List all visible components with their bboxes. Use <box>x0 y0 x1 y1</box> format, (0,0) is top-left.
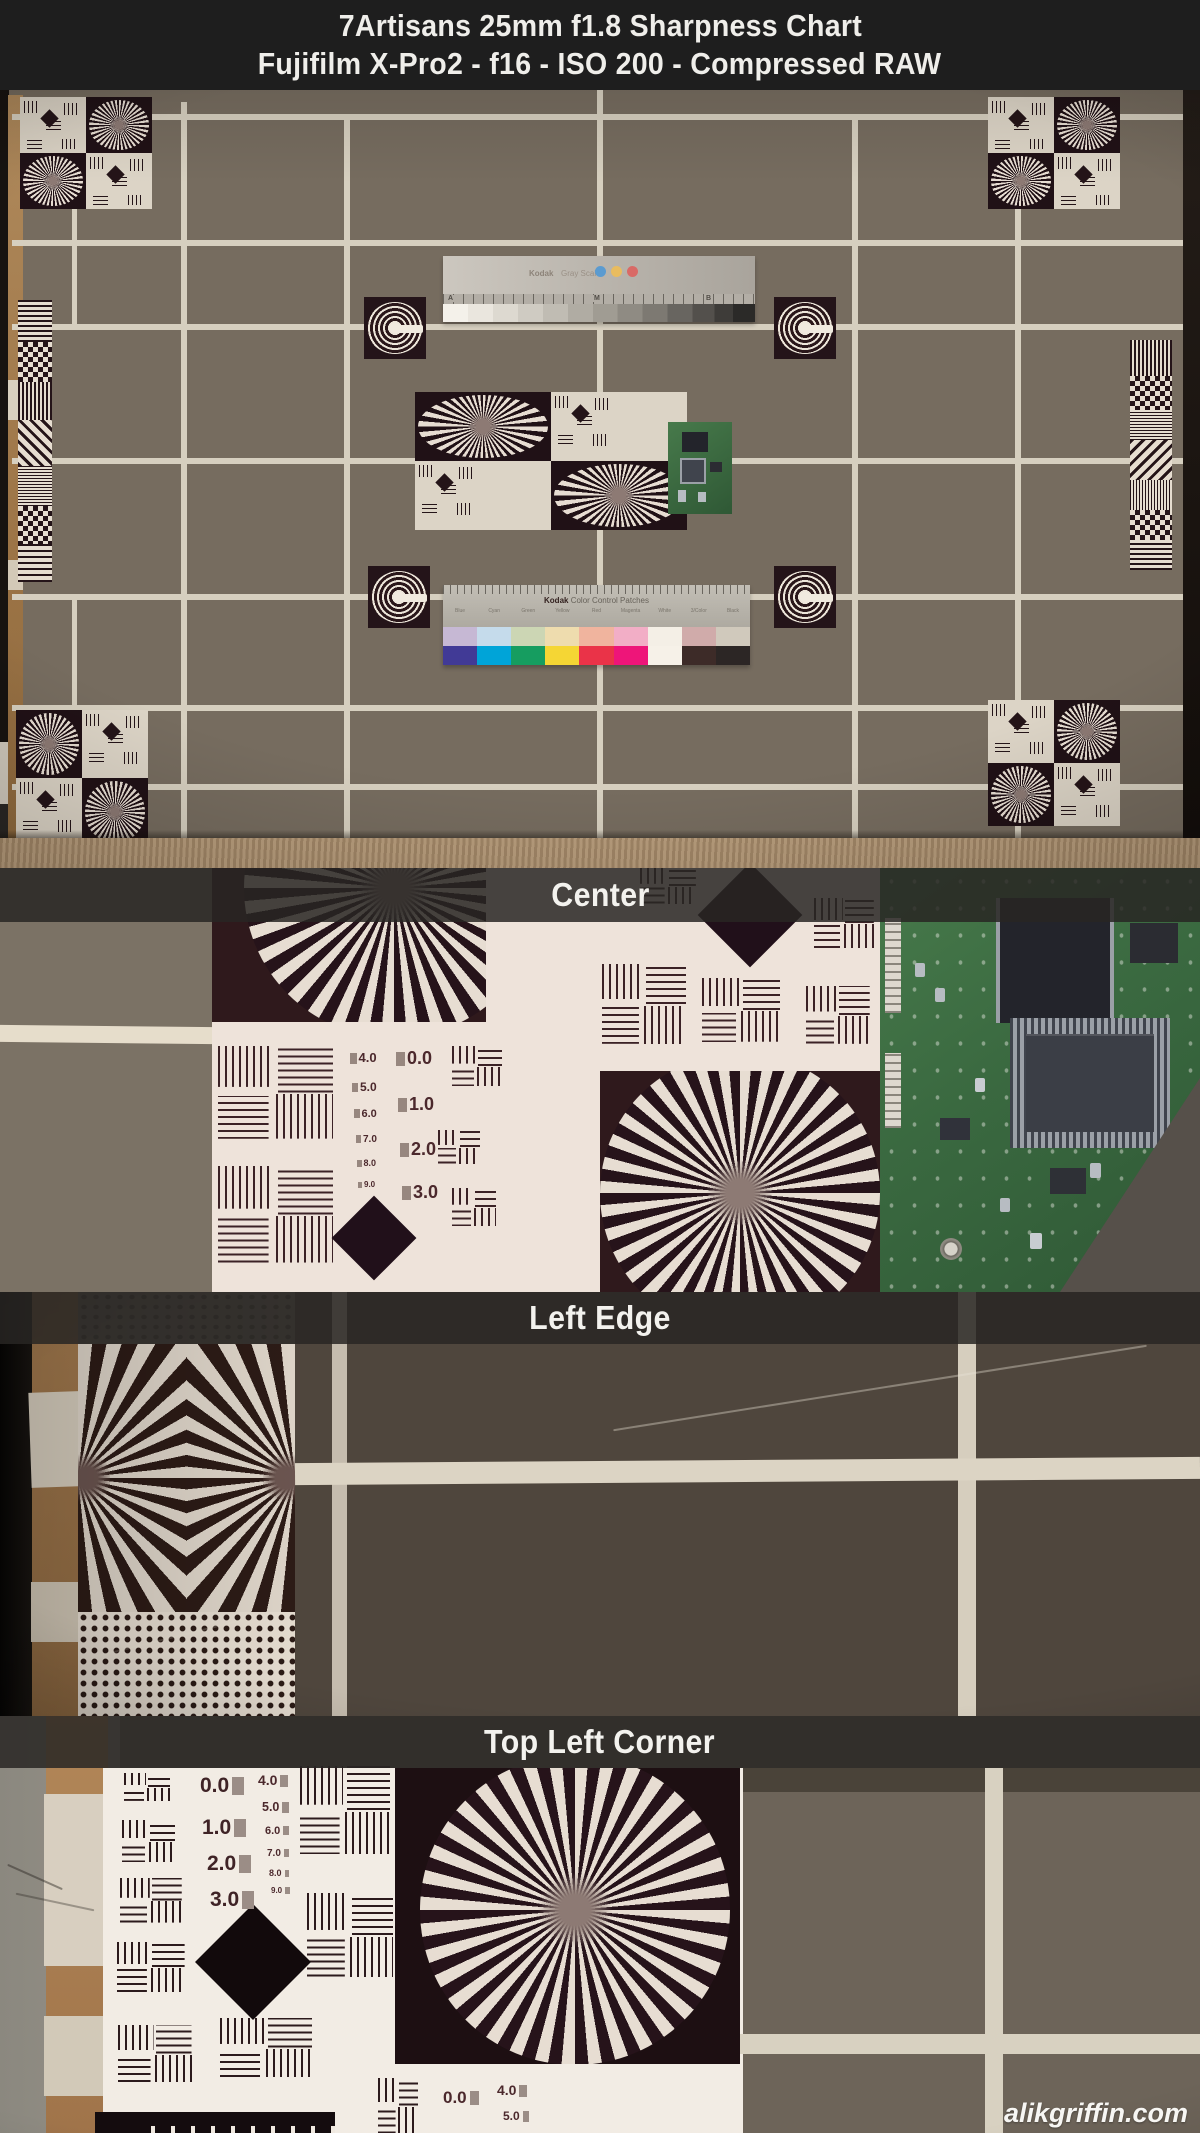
resolution-number: 2.0 <box>400 1139 436 1160</box>
starburst-icon <box>420 1768 730 2064</box>
pcb-connector <box>885 918 901 1013</box>
stripe-pattern <box>18 300 52 342</box>
section-label-band: Left Edge <box>0 1292 1200 1344</box>
stripe-pattern <box>1130 540 1172 570</box>
chip <box>710 462 722 472</box>
chip <box>680 458 706 484</box>
checker-pattern <box>1130 376 1172 410</box>
resolution-number: 1.0 <box>398 1094 434 1115</box>
corner-target-cluster-bottom-left <box>16 710 148 846</box>
patch-column-label: Magenta <box>614 608 648 614</box>
grid-line-vertical <box>181 102 187 842</box>
ruler-brand-label: Kodak <box>529 269 553 278</box>
grid-pattern <box>1130 410 1172 440</box>
grid-pattern <box>18 466 52 506</box>
patch-swatch <box>716 627 750 646</box>
patch-column-label: Black <box>716 608 750 614</box>
dark-foreground <box>0 1292 34 1716</box>
patch-swatch <box>511 646 545 665</box>
screenshot-canvas: 7Artisans 25mm f1.8 Sharpness Chart Fuji… <box>0 0 1200 2133</box>
capacitor <box>935 988 945 1002</box>
starburst-tile <box>551 461 687 530</box>
patch-column-label: Yellow <box>545 608 579 614</box>
chip <box>940 1118 970 1140</box>
zone-plate-target <box>364 297 426 359</box>
bar-target <box>307 1893 393 1977</box>
wall-scratch <box>613 1345 1147 1431</box>
patch-swatch <box>648 627 682 646</box>
wall-left <box>0 868 212 1292</box>
grid-line-vertical <box>958 1292 976 1716</box>
bar-target-tile <box>1054 763 1120 826</box>
bar-target <box>218 1166 333 1263</box>
center-crop-photo: 0.0 1.0 2.0 3.0 4.0 5.0 6.0 7.0 8.0 9.0 <box>0 868 1200 1292</box>
title-line-2: Fujifilm X-Pro2 - f16 - ISO 200 - Compre… <box>258 45 942 83</box>
patches-title: Kodak Color Control Patches <box>443 596 750 605</box>
patches-column-labels: Blue Cyan Green Yellow Red Magenta White… <box>443 608 750 614</box>
patch-swatch <box>579 627 613 646</box>
patches-ruler-ticks <box>443 585 750 594</box>
resolution-number: 6.0 <box>265 1825 289 1837</box>
title-bar: 7Artisans 25mm f1.8 Sharpness Chart Fuji… <box>0 0 1200 90</box>
bar-target-tile <box>1054 153 1120 209</box>
patch-swatch <box>545 627 579 646</box>
title-line-1: 7Artisans 25mm f1.8 Sharpness Chart <box>338 7 861 45</box>
starburst-square <box>600 1071 880 1292</box>
stripe-pattern <box>18 382 52 420</box>
patch-row-pastel <box>443 627 750 646</box>
resolution-number: 8.0 <box>357 1158 376 1168</box>
ruler-letter: M <box>593 295 601 302</box>
patch-swatch <box>477 646 511 665</box>
resolution-number: 9.0 <box>271 1886 290 1895</box>
resolution-number: 6.0 <box>354 1108 377 1120</box>
screw-pad <box>940 1238 962 1260</box>
ruler-body: Kodak Gray Scale <box>443 256 755 294</box>
patch-column-label: Red <box>579 608 613 614</box>
patch-swatch <box>716 646 750 665</box>
starburst-tile <box>20 153 86 209</box>
bar-target <box>378 2078 418 2133</box>
grid-line-horizontal <box>12 324 1188 330</box>
grid-line-vertical <box>985 1768 1003 2133</box>
grid-line-horizontal <box>0 1025 214 1044</box>
chip <box>682 432 708 452</box>
resolution-number: 3.0 <box>210 1888 254 1912</box>
resolution-number: 7.0 <box>267 1848 289 1859</box>
patch-swatch <box>579 646 613 665</box>
bar-target <box>452 1046 502 1086</box>
pcb-connector <box>885 1053 901 1128</box>
bar-target-tile <box>415 461 551 530</box>
wedge-fan-target <box>78 1344 295 1612</box>
pcb-board-small <box>668 422 732 514</box>
patch-column-label: 3/Color <box>682 608 716 614</box>
section-label: Top Left Corner <box>485 1723 716 1761</box>
capacitor <box>1000 1198 1010 1212</box>
section-label-band: Top Left Corner <box>0 1716 1200 1768</box>
fan-center-blur <box>78 1450 110 1506</box>
checker-pattern <box>18 506 52 544</box>
bar-target <box>124 1773 170 1801</box>
capacitor <box>678 490 686 502</box>
capacitor <box>698 492 706 502</box>
wedge-pattern <box>1130 440 1172 480</box>
carpet <box>0 838 1200 868</box>
wedge-pattern <box>18 420 52 466</box>
grid-line-horizontal <box>740 2034 1200 2054</box>
patch-swatch <box>614 646 648 665</box>
capacitor <box>1090 1163 1101 1178</box>
zone-plate-target <box>774 297 836 359</box>
bar-target <box>117 1942 185 1992</box>
resolution-number: 1.0 <box>202 1816 246 1840</box>
stripe-pattern <box>18 544 52 582</box>
patch-swatch <box>443 627 477 646</box>
resolution-number: 0.0 <box>200 1774 244 1798</box>
bar-target <box>438 1130 480 1164</box>
blue-dot-icon <box>595 266 606 277</box>
section-label: Left Edge <box>529 1299 671 1337</box>
pcb-board <box>880 868 1200 1292</box>
resolution-number: 4.0 <box>497 2082 527 2098</box>
grid-line-vertical <box>852 116 858 842</box>
starburst-tile <box>16 710 82 778</box>
qfp-chip-pins <box>1010 1018 1170 1148</box>
stripe-pattern <box>1130 340 1172 376</box>
top-left-corner-crop-photo: 0.0 1.0 2.0 3.0 4.0 5.0 6.0 7.0 8.0 9.0 … <box>0 1716 1200 2133</box>
resolution-number: 5.0 <box>503 2109 529 2123</box>
bar-target <box>122 1820 175 1862</box>
patch-swatch <box>682 646 716 665</box>
tape-piece <box>44 1794 108 1966</box>
starburst-tile <box>86 97 152 153</box>
grid-line-horizontal <box>12 240 1188 246</box>
bar-target-tile <box>551 392 687 461</box>
patch-swatch <box>648 646 682 665</box>
bar-target-tile <box>20 97 86 153</box>
resolution-number: 0.0 <box>396 1048 432 1069</box>
resolution-number: 4.0 <box>350 1050 377 1065</box>
patch-column-label: Green <box>511 608 545 614</box>
wood-frame <box>32 1292 78 1716</box>
kodak-color-patches: Kodak Color Control Patches Blue Cyan Gr… <box>443 585 750 665</box>
chart-top-shadow <box>740 1768 1200 1792</box>
resolution-number: 0.0 <box>443 2088 479 2108</box>
gray-step-wedge <box>443 304 755 322</box>
bar-target <box>220 2018 312 2077</box>
resolution-number: 4.0 <box>258 1772 288 1788</box>
resolution-number: 2.0 <box>207 1852 251 1876</box>
patch-swatch <box>545 646 579 665</box>
chip <box>1050 1168 1086 1194</box>
starburst-square <box>395 1768 740 2064</box>
photo-right-dark-edge <box>1183 90 1200 868</box>
ruler-letter: A <box>447 295 454 302</box>
patch-swatch <box>614 627 648 646</box>
starburst-square-partial <box>95 2112 335 2133</box>
capacitor <box>915 963 925 977</box>
zone-plate-target <box>368 566 430 628</box>
section-label-band: Center <box>0 868 1200 922</box>
fan-center-blur <box>263 1450 295 1506</box>
resolution-number: 7.0 <box>356 1134 377 1145</box>
bar-target-tile <box>988 97 1054 153</box>
full-chart-photo: Kodak Gray Scale A M B <box>0 90 1200 868</box>
section-label: Center <box>551 876 649 914</box>
bar-target <box>702 978 780 1042</box>
center-test-cluster <box>415 392 687 530</box>
yellow-dot-icon <box>611 266 622 277</box>
grid-line-vertical <box>332 1292 347 1716</box>
stripe-pattern <box>1130 480 1172 510</box>
starburst-icon <box>600 1071 880 1292</box>
bar-target <box>218 1046 333 1139</box>
patch-column-label: Cyan <box>477 608 511 614</box>
right-edge-pattern-strip <box>1130 340 1172 570</box>
zone-plate-target <box>774 566 836 628</box>
resolution-number: 5.0 <box>352 1080 377 1094</box>
red-dot-icon <box>627 266 638 277</box>
bar-target <box>806 986 870 1044</box>
checker-pattern <box>18 342 52 382</box>
patches-label: Color Control Patches <box>571 596 649 605</box>
ruler-letter: B <box>705 295 712 302</box>
grid-line-horizontal <box>295 1457 1200 1485</box>
patch-column-label: White <box>648 608 682 614</box>
patch-swatch <box>682 627 716 646</box>
bar-target <box>118 2025 192 2082</box>
patch-swatch <box>511 627 545 646</box>
bar-target <box>602 964 686 1044</box>
starburst-tile <box>415 392 551 461</box>
dot-grid-target <box>78 1612 295 1716</box>
qfp-chip-die <box>1026 1034 1154 1132</box>
bar-target <box>452 1188 496 1226</box>
left-edge-crop-photo: Left Edge <box>0 1292 1200 1716</box>
bar-target-tile <box>82 710 148 778</box>
patches-header: Kodak Color Control Patches Blue Cyan Gr… <box>443 585 750 627</box>
starburst-tile <box>988 153 1054 209</box>
checker-pattern <box>1130 510 1172 540</box>
resolution-number: 9.0 <box>358 1180 375 1189</box>
watermark: alikgriffin.com <box>1004 2098 1188 2129</box>
patch-column-label: Blue <box>443 608 477 614</box>
patches-brand: Kodak <box>544 596 568 605</box>
resolution-number: 8.0 <box>269 1868 289 1878</box>
bar-target-tile <box>86 153 152 209</box>
starburst-tile <box>988 763 1054 826</box>
corner-target-cluster-top-left <box>20 97 152 209</box>
capacitor <box>975 1078 985 1092</box>
tape-piece <box>28 1391 81 1488</box>
bar-target-tile <box>988 700 1054 763</box>
capacitor <box>1030 1233 1042 1249</box>
tape-piece <box>31 1582 79 1642</box>
corner-target-cluster-bottom-right <box>988 700 1120 826</box>
resolution-number: 5.0 <box>262 1800 289 1814</box>
grid-line-vertical <box>344 116 350 842</box>
patch-swatch <box>443 646 477 665</box>
bar-target <box>120 1878 182 1923</box>
ruler-tick-row: A M B <box>443 294 755 304</box>
patch-row-saturated <box>443 646 750 665</box>
bar-target <box>300 1766 390 1854</box>
tape-piece <box>44 2016 104 2096</box>
left-edge-pattern-strip <box>18 300 52 582</box>
corner-target-cluster-top-right <box>988 97 1120 209</box>
kodak-gray-scale-ruler: Kodak Gray Scale A M B <box>443 256 755 322</box>
starburst-tile <box>1054 97 1120 153</box>
starburst-tile <box>1054 700 1120 763</box>
patch-swatch <box>477 627 511 646</box>
resolution-number: 3.0 <box>402 1182 438 1203</box>
chip <box>1130 923 1178 963</box>
